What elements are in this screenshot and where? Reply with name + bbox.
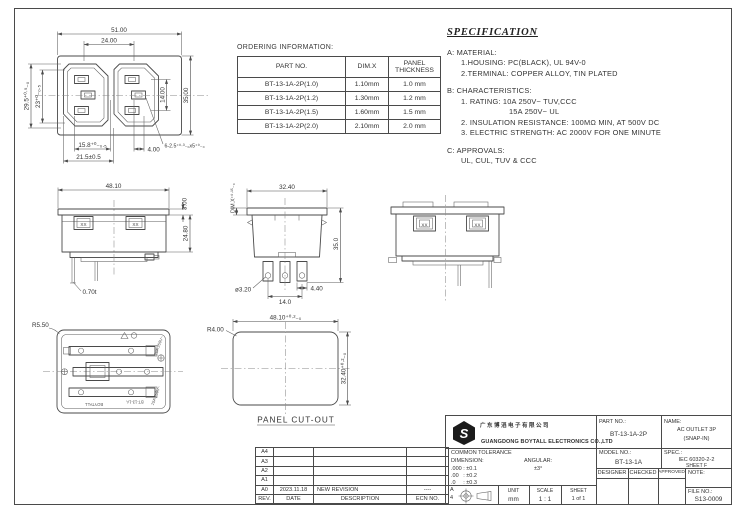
cell (314, 448, 407, 457)
ordering-row: BT-13-1A-2P(1.5)1.60mm1.5 mm (238, 106, 441, 120)
spec-b-head: B: CHARACTERISTICS: (447, 86, 731, 97)
body (252, 215, 322, 257)
checked-label: CHECKED (628, 470, 658, 476)
dim-24: 24.00 (101, 38, 117, 45)
drawing-sheet: 51.00 24.00 29.5⁺⁰·⁵₋₀ 23⁺⁰₋₀.₅ 14.00 35… (0, 0, 738, 512)
spec-b4: 3. ELECTRIC STRENGTH: AC 2000V FOR ONE M… (461, 128, 731, 139)
cell: ECN NO. (407, 494, 449, 503)
sheet-size-letter: A (450, 487, 454, 493)
cell (314, 466, 407, 475)
spec-value-2: SHEET F (661, 463, 732, 469)
dim-35: 35.00 (183, 87, 190, 103)
tolerance-2: .00 : ±0.2 (451, 473, 477, 479)
cell: 1.2 mm (389, 92, 441, 106)
file-no-value: S13-0009 (685, 496, 732, 503)
cell: A3 (256, 457, 274, 466)
cell (274, 476, 314, 485)
flange (58, 209, 169, 215)
cell (274, 466, 314, 475)
left-outlet-face (64, 64, 109, 126)
dim-35-0: 35.0 (333, 237, 340, 250)
ordering-col-part: PART NO. (238, 57, 346, 78)
cell: 2.0 mm (389, 120, 441, 134)
radius-note: R5.50 (32, 322, 49, 329)
dim-21-5: 21.5±0.5 (76, 154, 101, 161)
spec-b1: 1. RATING: 10A 250V~ TUV,CCC (461, 97, 731, 108)
revision-row: A1 (256, 476, 449, 485)
latch-mark: XX (421, 223, 427, 228)
ordering-title: ORDERING INFORMATION: (237, 44, 333, 51)
rear-view-drawing: XX XX (388, 185, 533, 307)
radius-note: R4.00 (207, 327, 224, 334)
ordering-col-dimx: DIM.X (346, 57, 389, 78)
sheet-value: 1 of 1 (561, 496, 596, 502)
front-view-drawing: 51.00 24.00 29.5⁺⁰·⁵₋₀ 23⁺⁰₋₀.₅ 14.00 35… (15, 25, 230, 177)
dim-0-70t: 0.70t (83, 289, 97, 296)
cell (407, 466, 449, 475)
spec-label: SPEC.: (664, 450, 682, 456)
dim-24-80: 24.80 (183, 225, 190, 241)
svg-text:S: S (460, 426, 469, 441)
cell (314, 476, 407, 485)
company-name-cn: 广东博滔电子有限公司 (480, 421, 550, 429)
dim-51: 51.00 (111, 27, 127, 34)
cutout-dimensions: 48.10⁺⁰·²₋₀ R4.00 32.40⁺⁰·²₋₀ (207, 315, 351, 406)
dim-4-40: 4.40 (311, 286, 324, 293)
model-no-value: BT-13-1A (596, 459, 661, 466)
cell: 1.0 mm (389, 78, 441, 92)
sheet-size-number: 4 (450, 495, 453, 501)
brand-label: BOYTALL (84, 402, 103, 407)
cell: DESCRIPTION (314, 494, 407, 503)
dim-pin-dia: ø3.20 (235, 287, 252, 294)
cell: 2023.11.18 (274, 485, 314, 494)
approved-label: APPROVED (658, 470, 685, 475)
ordering-col-thickness: PANEL THICKNESS (389, 57, 441, 78)
name-value-2: (SNAP-IN) (661, 436, 732, 442)
certification-mark-icon (131, 333, 137, 339)
cell: NEW REVISION (314, 485, 407, 494)
angular-label: ANGULAR: (524, 458, 552, 464)
cell (407, 457, 449, 466)
cell: ---- (407, 485, 449, 494)
cell: REV. (256, 494, 274, 503)
side-view-a-drawing: XX XX 48.10 3.00 24.80 0.70t (15, 180, 220, 312)
rating-label-1: 10A 250V~ (153, 335, 165, 356)
third-angle-projection-icon (458, 488, 496, 504)
revision-row: A4 (256, 448, 449, 457)
cell: BT-13-1A-2P(1.2) (238, 92, 346, 106)
scale-value: 1 : 1 (529, 496, 561, 503)
dimension-label: DIMENSION: (451, 458, 484, 464)
cell: 1.30mm (346, 92, 389, 106)
ordering-row: BT-13-1A-2P(2.0)2.10mm2.0 mm (238, 120, 441, 134)
side-a-dimensions: 48.10 3.00 24.80 0.70t (58, 183, 193, 296)
company-name-en: GUANGDONG BOYTALL ELECTRONICS CO.,LTD (481, 439, 613, 445)
dim-48-10: 48.10⁺⁰·²₋₀ (270, 315, 302, 322)
right-outlet-face (114, 64, 159, 126)
dim-32-40: 32.40 (279, 184, 295, 191)
dim-x-label: DIM.X⁺⁰·¹⁵₋₀ (231, 183, 237, 213)
dim-14: 14.00 (160, 87, 167, 103)
title-block: S 广东博滔电子有限公司 GUANGDONG BOYTALL ELECTRONI… (445, 415, 732, 505)
bottom-bracket (389, 256, 501, 288)
sheet-label: SHEET (561, 488, 596, 494)
scale-label: SCALE (529, 488, 561, 494)
tolerance-1: .000 : ±0.1 (451, 466, 477, 472)
screws-and-marks (62, 333, 165, 375)
dim-3: 3.00 (182, 197, 189, 210)
company-logo: S (451, 420, 477, 446)
name-label: NAME: (664, 419, 681, 425)
spec-a1: 1.HOUSING: PC(BLACK), UL 94V-0 (461, 58, 731, 69)
side-view-b-drawing: 32.40 DIM.X⁺⁰·¹⁵₋₀ 35.0 ø3.20 14.0 4.40 (215, 180, 395, 312)
cell: BT-13-1A-2P(1.0) (238, 78, 346, 92)
flange (247, 208, 327, 215)
latch-mark: XX (80, 222, 86, 227)
spec-value-1: IEC 60320-2-2 (661, 457, 732, 463)
dim-14-0: 14.0 (279, 299, 292, 306)
spec-b3: 2. INSULATION RESISTANCE: 100MΩ MIN, AT … (461, 118, 731, 129)
body (396, 214, 499, 256)
unit-label: UNIT (498, 488, 529, 494)
snap-latches: XX XX (414, 216, 489, 231)
spec-a2: 2.TERMINAL: COPPER ALLOY, TIN PLATED (461, 69, 731, 80)
cell: BT-13-1A-2P(2.0) (238, 120, 346, 134)
note-label: NOTE: (688, 470, 705, 476)
spec-c1: UL, CUL, TUV & CCC (461, 156, 731, 167)
name-value-1: AC OUTLET 3P (661, 427, 732, 433)
cell: A4 (256, 448, 274, 457)
latch-hooks (248, 220, 327, 225)
cell (274, 448, 314, 457)
model-label: BT-13-1A (126, 400, 144, 405)
cell: DATE (274, 494, 314, 503)
unit-value: mm (498, 496, 529, 503)
latch-mark: XX (132, 222, 138, 227)
cell (274, 457, 314, 466)
tolerance-title: COMMON TOLERANCE (451, 450, 512, 456)
cell: 1.5 mm (389, 106, 441, 120)
part-no-value: BT-13-1A-2P (596, 431, 661, 438)
model-no-label: MODEL NO.: (599, 450, 631, 456)
latch-mark: XX (474, 223, 480, 228)
cell: 1.10mm (346, 78, 389, 92)
bottom-bracket (70, 252, 159, 283)
dim-15-8: 15.8⁺⁰₋₀.₅ (78, 142, 107, 149)
specification-block: SPECIFICATION A: MATERIAL: 1.HOUSING: PC… (447, 28, 731, 167)
dim-29-5: 29.5⁺⁰·⁵₋₀ (24, 81, 31, 110)
revision-row: A2 (256, 466, 449, 475)
dim-32-40: 32.40⁺⁰·²₋₀ (340, 352, 347, 384)
back-view-drawing: R5.50 BOYTALL BT-13-1A (15, 310, 200, 425)
file-no-label: FILE NO.: (688, 489, 712, 495)
side-b-dimensions: 32.40 DIM.X⁺⁰·¹⁵₋₀ 35.0 ø3.20 14.0 4.40 (231, 183, 344, 306)
part-no-label: PART NO.: (599, 419, 626, 425)
cutout-label: PANEL CUT-OUT (257, 416, 335, 425)
angular-value: ±3° (534, 466, 542, 472)
cell: A0 (256, 485, 274, 494)
dim-23: 23⁺⁰₋₀.₅ (35, 85, 42, 109)
designer-label: DESIGNER (596, 470, 628, 476)
revision-row: A02023.11.18 NEW REVISION---- (256, 485, 449, 494)
snap-latches: XX XX (74, 217, 145, 230)
cell: 1.60mm (346, 106, 389, 120)
slot-size-note: 6-2.5⁺⁰·³₋₀x5⁺⁰₋₀ (165, 144, 205, 150)
spec-a-head: A: MATERIAL: (447, 48, 731, 59)
spec-title: SPECIFICATION (447, 28, 731, 39)
flange (391, 207, 504, 214)
cell: BT-13-1A-2P(1.5) (238, 106, 346, 120)
cell (314, 457, 407, 466)
ordering-table: PART NO. DIM.X PANEL THICKNESS BT-13-1A-… (237, 56, 441, 134)
dim-4: 4.00 (148, 147, 161, 154)
ordering-row: BT-13-1A-2P(1.0)1.10mm1.0 mm (238, 78, 441, 92)
cell: 2.10mm (346, 120, 389, 134)
spec-b2: 15A 250V~ UL (509, 107, 731, 118)
ordering-row: BT-13-1A-2P(1.2)1.30mm1.2 mm (238, 92, 441, 106)
dim-48-10: 48.10 (106, 183, 122, 190)
cell: A2 (256, 466, 274, 475)
revision-table: A4 A3 A2 A1 A02023.11.18 NEW REVISION---… (255, 447, 449, 504)
cell (407, 476, 449, 485)
warning-triangle-icon (121, 333, 128, 339)
cell (407, 448, 449, 457)
cell: A1 (256, 476, 274, 485)
revision-footer-row: REV.DATE DESCRIPTIONECN NO. (256, 494, 449, 503)
spec-c-head: C: APPROVALS: (447, 146, 731, 157)
panel-cutout-drawing: 48.10⁺⁰·²₋₀ R4.00 32.40⁺⁰·²₋₀ PANEL CUT-… (195, 310, 400, 430)
revision-row: A3 (256, 457, 449, 466)
tolerance-3: .0 : ±0.3 (451, 480, 477, 486)
